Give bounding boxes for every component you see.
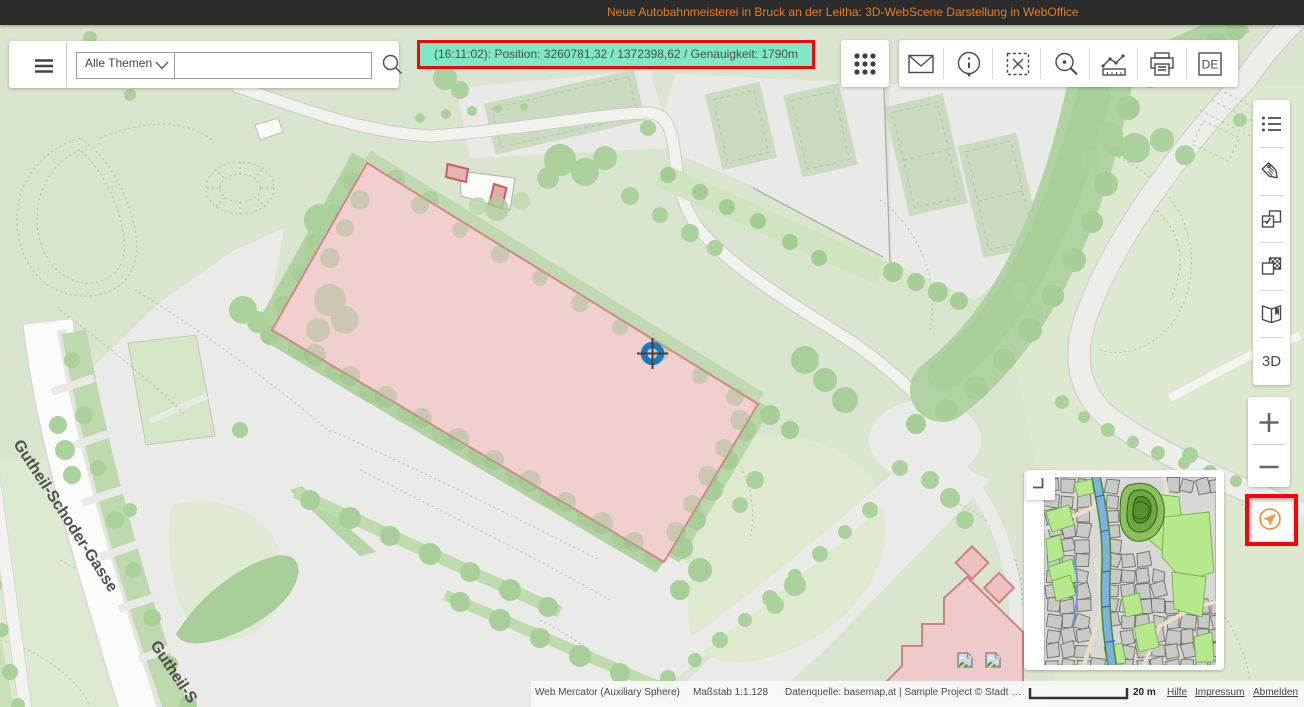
svg-text:DE: DE (1202, 58, 1219, 72)
svg-text:3D: 3D (1262, 353, 1281, 370)
